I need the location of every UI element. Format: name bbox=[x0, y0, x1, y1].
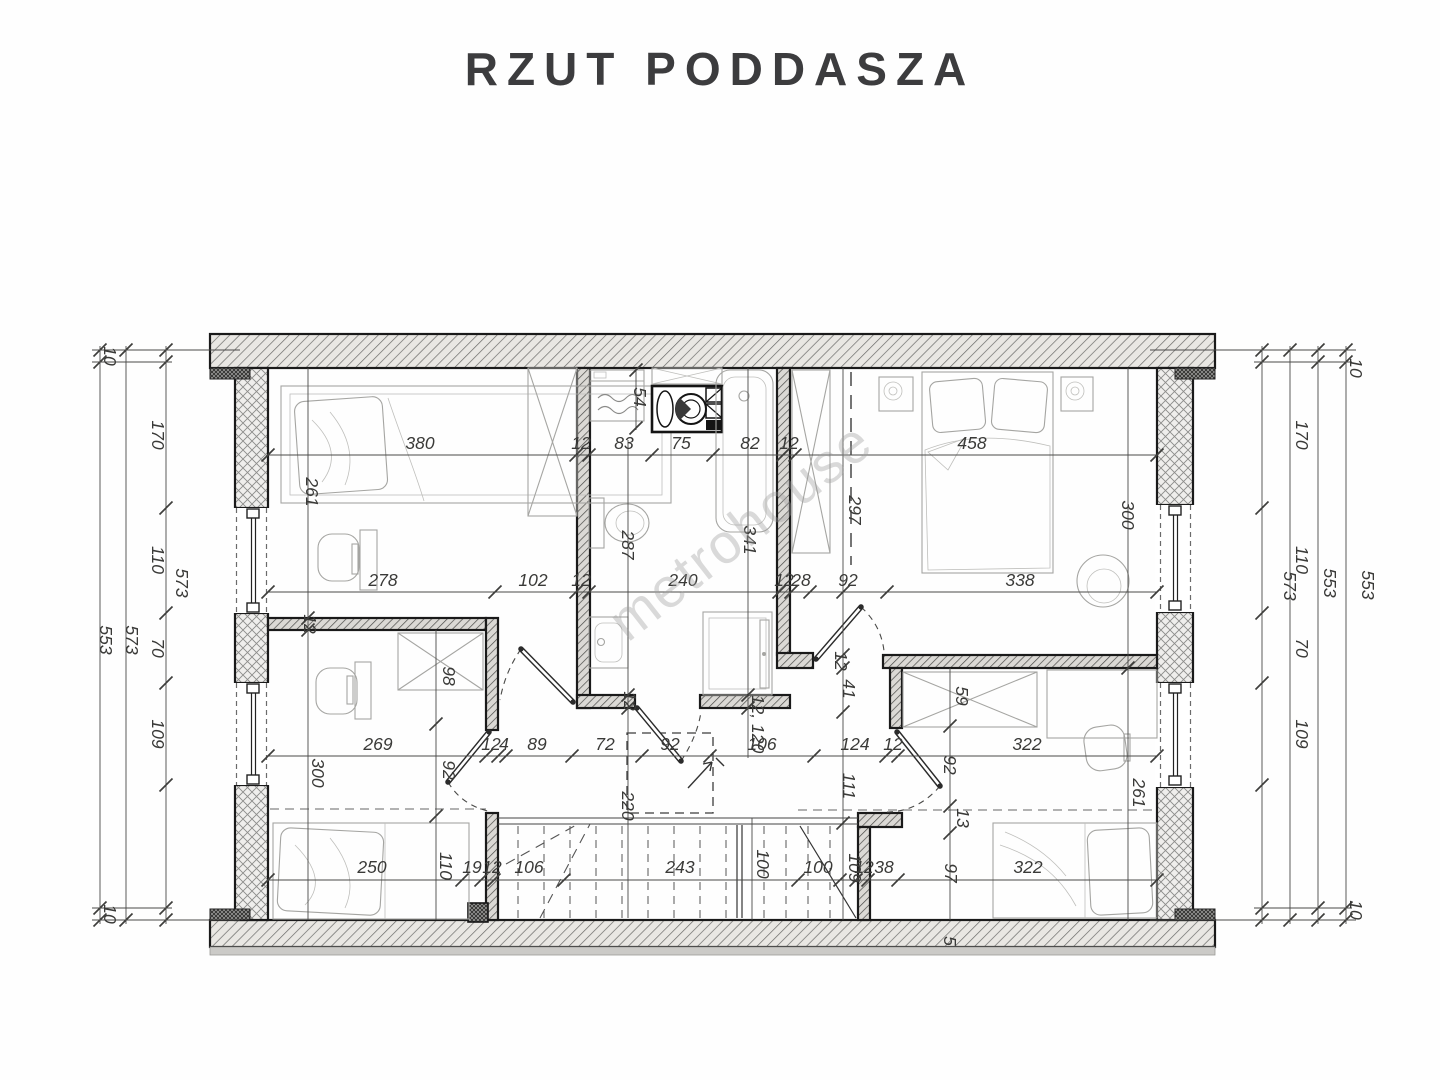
dim-label: 4 bbox=[499, 734, 509, 754]
dim-label: 97 bbox=[941, 863, 961, 884]
dim-label: 553 bbox=[1320, 568, 1340, 597]
dim-label: 573 bbox=[172, 568, 192, 597]
dim-label: 92 bbox=[439, 760, 459, 780]
dim-label: 110 bbox=[436, 852, 456, 880]
window-right-1 bbox=[1155, 505, 1195, 612]
dim-label: 12 bbox=[571, 570, 591, 590]
dim-label: 12 bbox=[482, 857, 502, 877]
nightstand-left bbox=[879, 377, 913, 411]
dim-label: 10 bbox=[100, 904, 120, 924]
dim-label: 19 bbox=[462, 857, 482, 877]
dim-label: 5 bbox=[940, 936, 960, 946]
dim-label: 458 bbox=[957, 433, 986, 453]
dim-label: 106 bbox=[514, 857, 543, 877]
plinth-strip bbox=[210, 947, 1215, 955]
dim-label: 12 bbox=[620, 691, 640, 711]
dim-label: 243 bbox=[664, 857, 694, 877]
dim-label: 170 bbox=[1292, 420, 1312, 449]
dim-label: 13 bbox=[953, 808, 973, 828]
floorplan-drawing: 3801283758212458278102122401228923382691… bbox=[0, 0, 1440, 1080]
dim-label: 70 bbox=[1292, 638, 1312, 658]
shower bbox=[703, 612, 772, 695]
dim-label: 75 bbox=[671, 433, 691, 453]
dim-label: 41 bbox=[839, 679, 859, 698]
dim-label: 28 bbox=[790, 570, 811, 590]
dim-label: 70 bbox=[148, 638, 168, 658]
dim-label: 10 bbox=[1346, 900, 1366, 920]
dim-label: 82 bbox=[740, 433, 760, 453]
dim-label: 297 bbox=[845, 494, 865, 525]
dim-label: 250 bbox=[356, 857, 386, 877]
dim-label: 10 bbox=[1346, 358, 1366, 378]
dim-label: 341 bbox=[740, 525, 760, 554]
dim-label: 170 bbox=[148, 420, 168, 449]
desk-and-chair bbox=[1047, 670, 1157, 773]
dim-label: 338 bbox=[1005, 570, 1034, 590]
dim-label: 553 bbox=[96, 625, 116, 654]
dim-label: 110 bbox=[148, 546, 168, 574]
dim-label: 12 bbox=[300, 614, 320, 634]
dim-label: 111 bbox=[839, 773, 859, 800]
dim-label: 12 bbox=[779, 433, 799, 453]
dim-label: 300 bbox=[308, 758, 328, 787]
dim-label: 573 bbox=[1280, 571, 1300, 600]
pillar bbox=[468, 903, 488, 922]
interior-walls bbox=[268, 368, 1157, 922]
dim-label: 109 bbox=[1292, 719, 1312, 748]
stair-up-arrow bbox=[688, 758, 724, 788]
dim-label: 10 bbox=[100, 346, 120, 366]
dim-label: 109 bbox=[148, 719, 168, 748]
dim-label: 380 bbox=[405, 433, 434, 453]
dim-label: 553 bbox=[1358, 570, 1378, 599]
dim-label: 240 bbox=[667, 570, 697, 590]
dim-label: 287 bbox=[618, 529, 638, 560]
window-left-2 bbox=[233, 683, 270, 785]
dim-label: 83 bbox=[614, 433, 634, 453]
dim-label: 59 bbox=[952, 686, 972, 706]
dim-label: 322 bbox=[1012, 734, 1041, 754]
dim-label: 38 bbox=[874, 857, 894, 877]
double-bed bbox=[922, 372, 1053, 573]
dim-label: 278 bbox=[367, 570, 397, 590]
dim-label: 12, 120 bbox=[748, 695, 768, 754]
dim-label: 92 bbox=[940, 755, 960, 775]
floorplan-sheet: RZUT PODDASZA bbox=[0, 0, 1440, 1080]
wardrobe bbox=[528, 368, 577, 516]
dim-label: 269 bbox=[362, 734, 392, 754]
dim-label: 300 bbox=[1118, 500, 1138, 529]
dim-label: 12 bbox=[883, 734, 903, 754]
window-left-1 bbox=[233, 508, 270, 613]
dim-label: 92 bbox=[660, 734, 680, 754]
dim-label: 12 bbox=[831, 651, 851, 671]
room-top-left-bedroom bbox=[281, 368, 671, 590]
window-right-2 bbox=[1155, 683, 1195, 787]
dim-label: 54 bbox=[630, 387, 650, 407]
dim-label: 89 bbox=[527, 734, 547, 754]
dim-label: 110 bbox=[1292, 546, 1312, 574]
sink bbox=[589, 617, 628, 668]
dim-label: 92 bbox=[838, 570, 858, 590]
dim-label: 100 bbox=[753, 849, 773, 878]
dim-label: 261 bbox=[302, 476, 322, 506]
dim-label: 102 bbox=[518, 570, 547, 590]
nightstand-right bbox=[1061, 377, 1093, 411]
dim-label: 12 bbox=[571, 433, 591, 453]
dim-label: 220 bbox=[618, 790, 638, 820]
wardrobe bbox=[792, 370, 830, 553]
armchair bbox=[1077, 555, 1129, 607]
dim-label: 12 bbox=[481, 734, 501, 754]
dim-label: 100 bbox=[803, 857, 832, 877]
dim-label: 72 bbox=[595, 734, 615, 754]
dim-label: 124 bbox=[840, 734, 869, 754]
dim-label: 573 bbox=[122, 625, 142, 654]
dim-label: 98 bbox=[439, 666, 459, 686]
dim-label: 261 bbox=[1129, 777, 1149, 807]
door bbox=[500, 646, 576, 704]
desk-and-chair bbox=[316, 662, 371, 719]
washer-dryer-column bbox=[652, 368, 722, 432]
dim-label: 322 bbox=[1013, 857, 1042, 877]
dim-label: 109 bbox=[845, 853, 865, 882]
bed bbox=[281, 386, 671, 503]
